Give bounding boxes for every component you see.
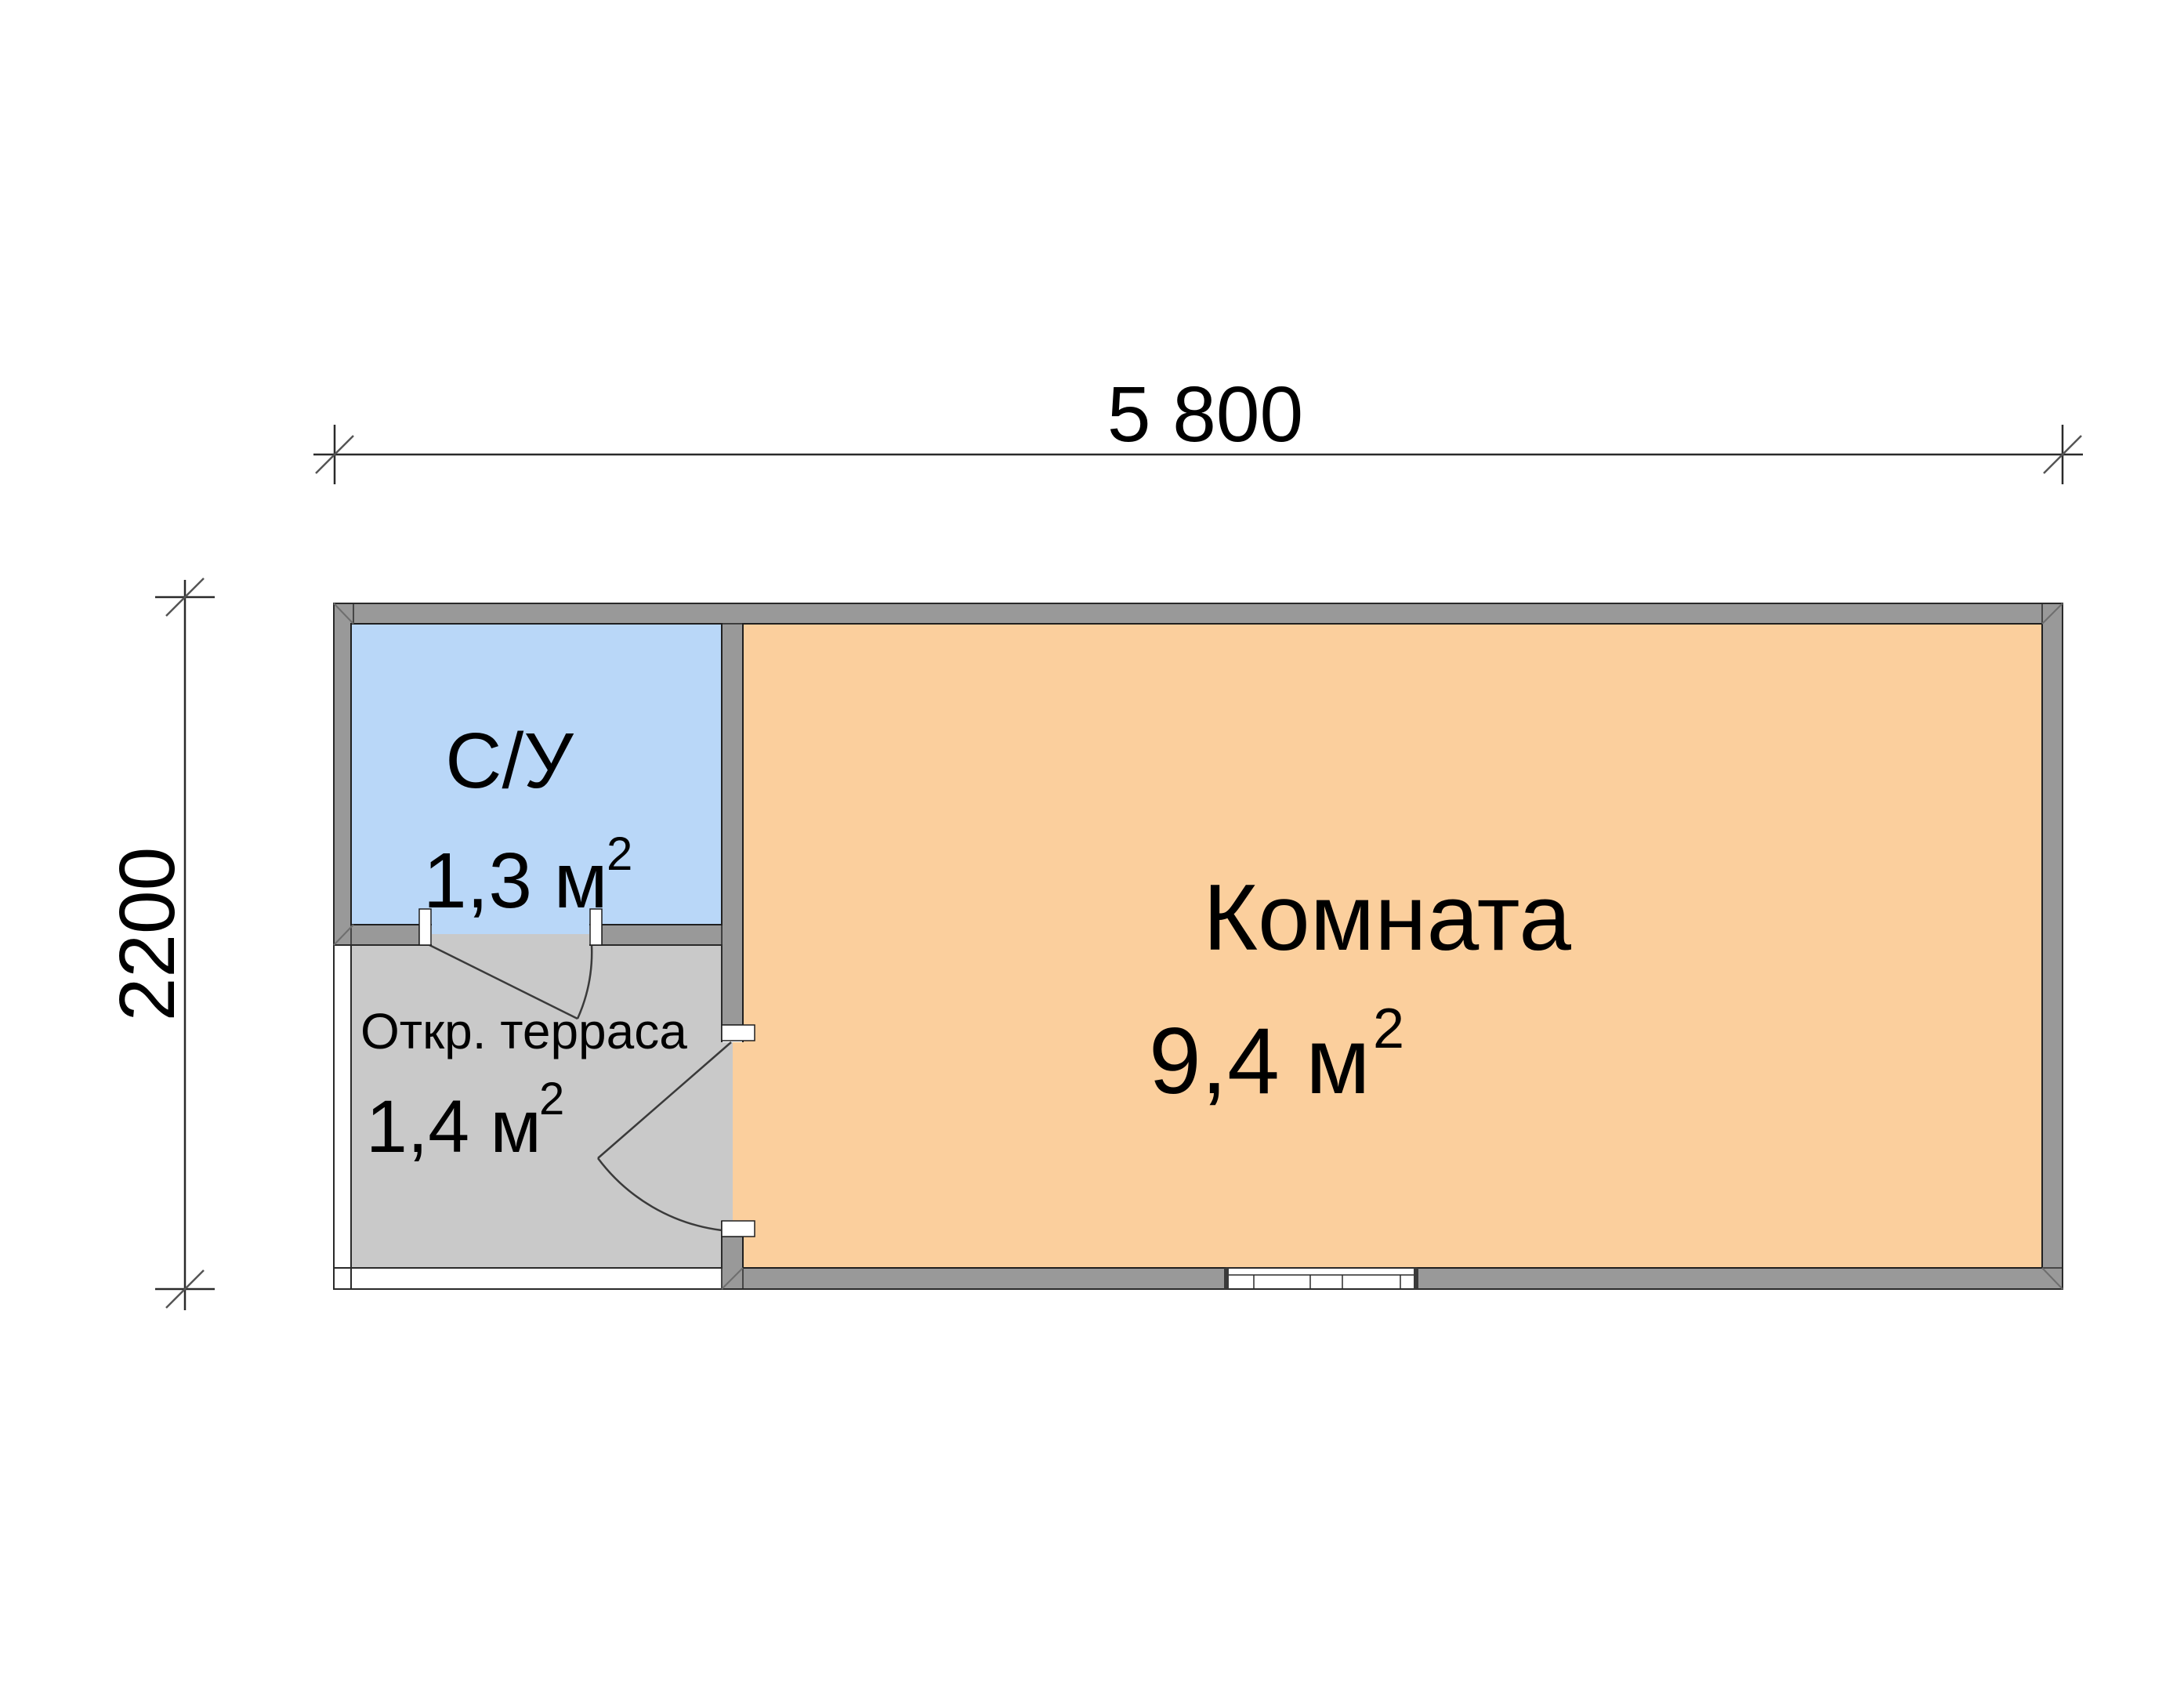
bathroom-name-label: С/У <box>445 717 574 805</box>
room-name-label: Комната <box>1203 865 1571 970</box>
wall-inner-lower <box>722 1237 743 1289</box>
room-doorway-patch-orange <box>733 1042 744 1221</box>
dimension-height-label: 2200 <box>103 847 191 1021</box>
wall-bathroom-bottom-right <box>602 925 722 945</box>
terrace-area-superscript: 2 <box>539 1074 564 1124</box>
dimension-width-label: 5 800 <box>1107 371 1303 458</box>
wall-inner-upper <box>722 624 743 1025</box>
room-door-jamb-bottom <box>722 1221 755 1237</box>
bathroom-area-superscript: 2 <box>607 828 632 880</box>
floor-plan-drawing: 5 800 2200 <box>0 0 2184 1680</box>
terrace-open-edges <box>334 945 351 1288</box>
floor-plan-canvas: 5 800 2200 <box>0 0 2184 1680</box>
bathroom-doorway-patch-gray <box>432 934 589 946</box>
room-area-label: 9,4 м <box>1149 1009 1371 1114</box>
window-end-cap-right <box>1414 1268 1418 1289</box>
terrace-name-label: Откр. терраса <box>360 1003 687 1059</box>
terrace-area-label: 1,4 м <box>366 1085 541 1168</box>
window-end-cap-left <box>1224 1268 1229 1289</box>
window <box>1224 1268 1418 1289</box>
bathroom-doorway-patch-blue <box>432 924 589 935</box>
wall-bathroom-bottom-left <box>351 925 419 945</box>
room-doorway-patch-gray <box>721 1042 733 1221</box>
room-area-superscript: 2 <box>1373 998 1404 1060</box>
bathroom-area-label: 1,3 м <box>423 837 608 925</box>
wall-right <box>2042 603 2063 1289</box>
room-door-jamb-top <box>722 1025 755 1041</box>
wall-top <box>334 603 2063 624</box>
window-frame <box>1226 1268 1416 1289</box>
